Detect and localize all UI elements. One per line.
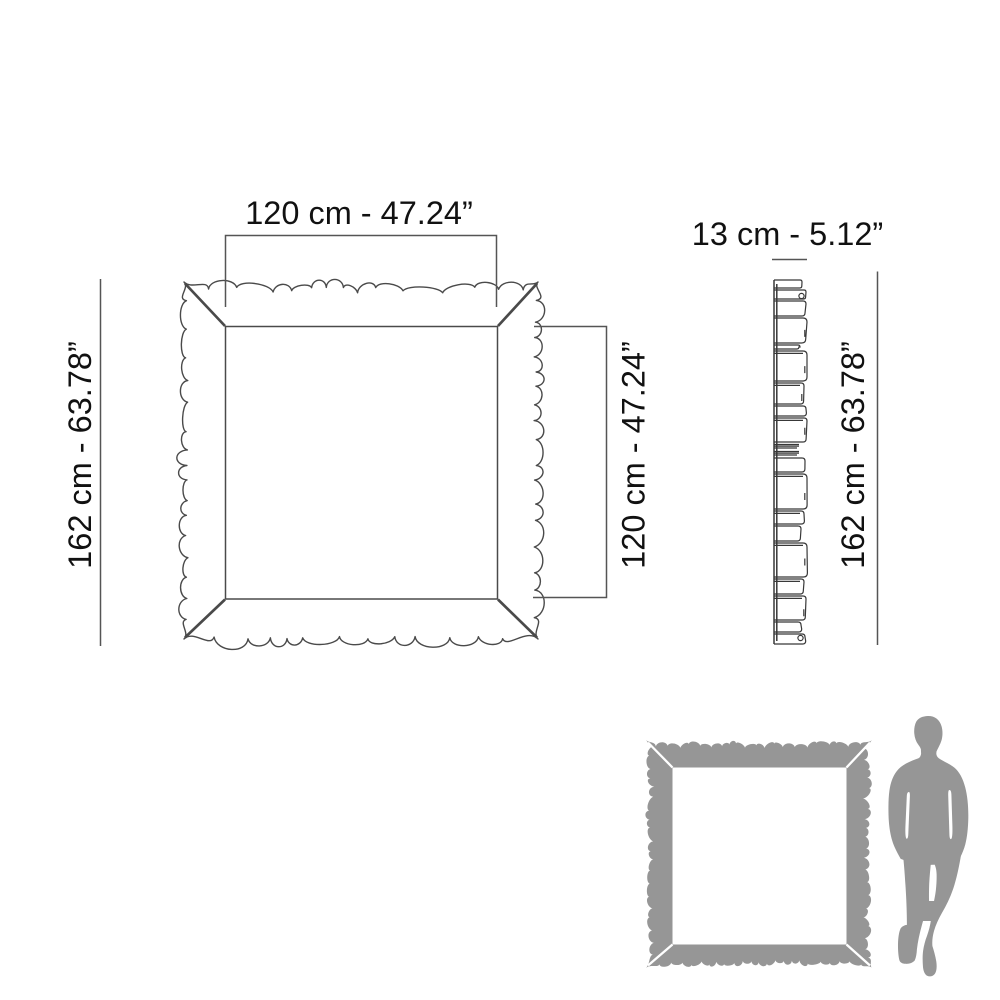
svg-text:162 cm - 63.78”: 162 cm - 63.78” [835,341,871,569]
svg-text:13 cm - 5.12”: 13 cm - 5.12” [692,216,883,252]
svg-text:120 cm - 47.24”: 120 cm - 47.24” [245,195,473,231]
svg-text:120 cm - 47.24”: 120 cm - 47.24” [616,341,652,569]
svg-text:162 cm - 63.78”: 162 cm - 63.78” [62,341,98,569]
